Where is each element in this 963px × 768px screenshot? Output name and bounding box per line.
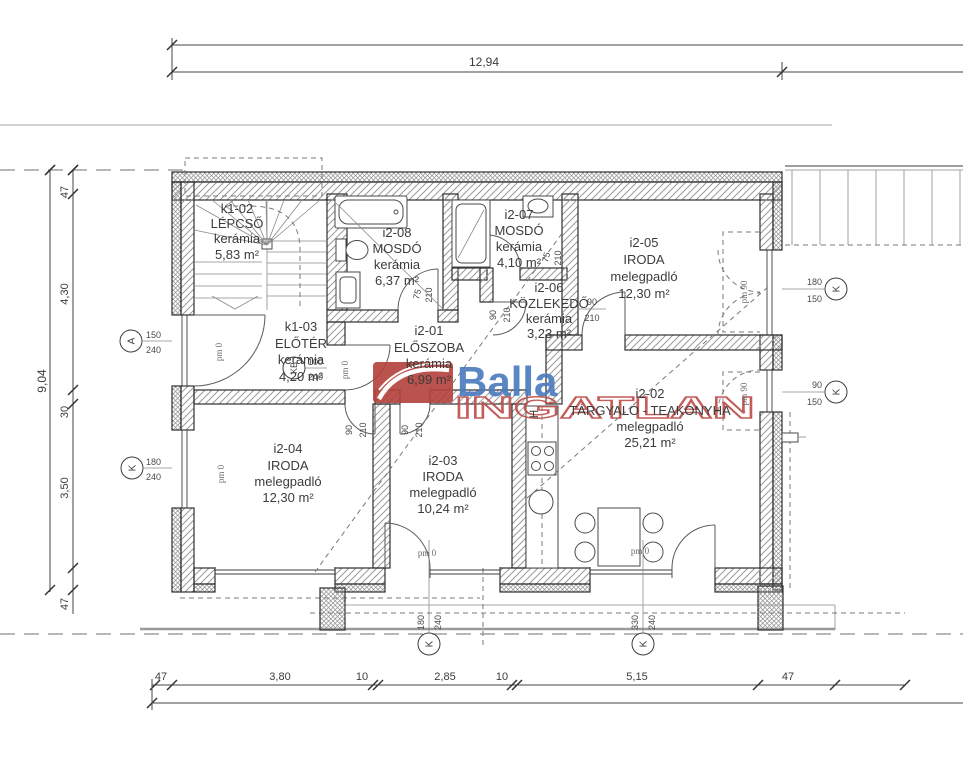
svg-text:ELŐSZOBA: ELŐSZOBA	[394, 340, 464, 355]
svg-text:12,30 m²: 12,30 m²	[262, 490, 314, 505]
svg-text:75: 75	[540, 251, 552, 263]
door-elotér-left	[194, 315, 265, 386]
svg-text:240: 240	[146, 472, 161, 482]
svg-text:kerámia: kerámia	[496, 239, 543, 254]
svg-text:210: 210	[424, 287, 434, 302]
svg-text:25,21 m²: 25,21 m²	[624, 435, 676, 450]
svg-text:pm 90: pm 90	[739, 382, 749, 405]
dim-left-3: 3,50	[59, 477, 71, 498]
svg-text:LÉPCSŐ: LÉPCSŐ	[211, 216, 264, 231]
dim-bottom-6: 47	[782, 671, 794, 683]
svg-text:melegpadló: melegpadló	[409, 485, 476, 500]
room-label-i2-08: i2-08 MOSDÓ kerámia 6,37 m²	[372, 225, 421, 288]
svg-text:12,30 m²: 12,30 m²	[618, 286, 670, 301]
svg-text:melegpadló: melegpadló	[610, 269, 677, 284]
svg-text:k1-02: k1-02	[221, 201, 254, 216]
svg-text:90: 90	[400, 425, 410, 435]
room-label-k1-02: k1-02 LÉPCSŐ kerámia 5,83 m²	[211, 201, 264, 262]
window-left-iroda	[179, 430, 191, 508]
svg-text:i2-08: i2-08	[383, 225, 412, 240]
svg-text:melegpadló: melegpadló	[616, 419, 683, 434]
svg-text:i2-01: i2-01	[415, 323, 444, 338]
svg-text:kerámia: kerámia	[374, 257, 421, 272]
svg-text:melegpadló: melegpadló	[254, 474, 321, 489]
dim-top-total: 12,94	[469, 55, 499, 69]
svg-text:ELŐTÉR: ELŐTÉR	[275, 336, 327, 351]
door-size-i2-04: 90 210	[344, 422, 368, 437]
dim-left-0: 47	[59, 186, 71, 198]
svg-text:4,10 m²: 4,10 m²	[497, 255, 542, 270]
terrace-top-right	[785, 166, 963, 245]
svg-text:A: A	[127, 337, 138, 344]
svg-text:MOSDÓ: MOSDÓ	[372, 241, 421, 256]
svg-text:KÖZLEKEDŐ: KÖZLEKEDŐ	[509, 296, 588, 311]
room-label-i2-05: i2-05 IRODA melegpadló 12,30 m²	[610, 235, 677, 301]
dim-left-1: 4,30	[59, 283, 71, 304]
svg-text:90: 90	[344, 425, 354, 435]
dimension-left: 9,04 47 4,30 30 3,50 47	[35, 165, 78, 614]
svg-text:TÁRGYALÓ - TEAKONYHA: TÁRGYALÓ - TEAKONYHA	[569, 403, 731, 418]
door-size-i2-06: 90 210	[488, 307, 512, 322]
svg-text:6,37 m²: 6,37 m²	[375, 273, 420, 288]
dim-bottom-1: 3,80	[269, 671, 290, 683]
svg-text:210: 210	[553, 250, 563, 265]
svg-text:210: 210	[502, 307, 512, 322]
svg-text:5,83 m²: 5,83 m²	[215, 247, 260, 262]
shower	[452, 200, 490, 267]
marker-K-right-1: K 180 150	[782, 277, 847, 304]
svg-text:210: 210	[584, 313, 599, 323]
svg-text:210: 210	[358, 422, 368, 437]
window-left-elotér	[179, 315, 191, 386]
svg-text:IRODA: IRODA	[422, 469, 464, 484]
svg-text:180: 180	[807, 277, 822, 287]
dimension-top: 12,94	[167, 38, 963, 80]
svg-text:240: 240	[308, 372, 323, 382]
room-label-i2-03: i2-03 IRODA melegpadló 10,24 m²	[409, 453, 476, 516]
svg-text:180: 180	[416, 615, 426, 630]
bathtub	[335, 196, 407, 228]
svg-text:kerámia: kerámia	[406, 356, 453, 371]
svg-text:kerámia: kerámia	[214, 231, 261, 246]
kitchen-counter	[526, 406, 558, 568]
door-i2-02-terrace	[672, 525, 715, 568]
meeting-table	[575, 508, 663, 566]
svg-text:K: K	[425, 640, 436, 647]
svg-text:240: 240	[647, 615, 657, 630]
svg-text:6,99 m²: 6,99 m²	[407, 372, 452, 387]
svg-text:MOSDÓ: MOSDÓ	[494, 223, 543, 238]
svg-text:150: 150	[807, 294, 822, 304]
dim-bottom-3: 2,85	[434, 671, 455, 683]
svg-text:90: 90	[812, 380, 822, 390]
svg-text:KB: KB	[289, 362, 299, 374]
dim-bottom-2: 10	[356, 671, 368, 683]
door-size-i2-03: 90 210	[400, 422, 424, 437]
sink-i2-08	[336, 272, 360, 308]
radiator-valve	[782, 433, 806, 442]
svg-text:pm 0: pm 0	[214, 342, 224, 361]
svg-text:90: 90	[488, 310, 498, 320]
marker-K-right-2: K 90 150	[782, 380, 847, 407]
floor-plan: 12,94 9,04 47 4,30 30 3,50 47 47 3,80 10	[0, 0, 963, 768]
svg-text:90: 90	[587, 297, 597, 307]
dim-left-4: 47	[59, 598, 71, 610]
svg-text:K: K	[128, 464, 139, 471]
svg-text:150: 150	[807, 397, 822, 407]
svg-text:100: 100	[308, 357, 323, 367]
svg-text:kerámia: kerámia	[526, 311, 573, 326]
svg-text:pm 0: pm 0	[418, 548, 437, 558]
svg-text:pm 0: pm 0	[631, 546, 650, 556]
svg-text:pm 0: pm 0	[216, 464, 226, 483]
svg-text:3,23 m²: 3,23 m²	[527, 326, 572, 341]
svg-text:IRODA: IRODA	[267, 458, 309, 473]
svg-text:i2-02: i2-02	[636, 386, 665, 401]
toilet	[336, 239, 368, 261]
dim-bottom-0: 47	[155, 671, 167, 683]
marker-K-left: K 180 240	[121, 457, 172, 482]
svg-text:i2-04: i2-04	[274, 441, 303, 456]
window-bottom-i2-02	[590, 567, 672, 578]
svg-text:pm 90: pm 90	[739, 280, 749, 303]
svg-text:180: 180	[146, 457, 161, 467]
svg-text:i2-05: i2-05	[630, 235, 659, 250]
svg-text:240: 240	[433, 615, 443, 630]
svg-text:IRODA: IRODA	[623, 252, 665, 267]
dim-left-total: 9,04	[35, 369, 49, 393]
svg-text:K: K	[832, 388, 843, 395]
svg-text:75: 75	[411, 288, 423, 300]
svg-text:K: K	[639, 640, 650, 647]
window-bottom-i2-03	[430, 567, 500, 578]
dim-bottom-4: 10	[496, 671, 508, 683]
svg-text:210: 210	[414, 422, 424, 437]
svg-text:150: 150	[146, 330, 161, 340]
svg-text:k1-03: k1-03	[285, 319, 318, 334]
room-label-i2-04: i2-04 IRODA melegpadló 12,30 m²	[254, 441, 321, 505]
svg-text:K: K	[832, 285, 843, 292]
svg-text:i2-03: i2-03	[429, 453, 458, 468]
door-i2-03-terrace	[385, 523, 430, 568]
door-size-i2-07: 75 210	[540, 250, 563, 265]
h-symbol: H	[527, 410, 541, 419]
svg-text:pm 0: pm 0	[340, 360, 350, 379]
door-size-i2-08: 75 210	[411, 287, 434, 302]
svg-text:240: 240	[146, 345, 161, 355]
svg-text:i2-07: i2-07	[505, 207, 534, 222]
dim-left-2: 30	[59, 406, 71, 418]
svg-text:i2-06: i2-06	[535, 280, 564, 295]
dimension-bottom: 47 3,80 10 2,85 10 5,15 47	[147, 671, 963, 710]
dim-bottom-5: 5,15	[626, 671, 647, 683]
svg-text:10,24 m²: 10,24 m²	[417, 501, 469, 516]
svg-text:330: 330	[630, 615, 640, 630]
marker-A-left: A 150 240	[120, 330, 172, 355]
